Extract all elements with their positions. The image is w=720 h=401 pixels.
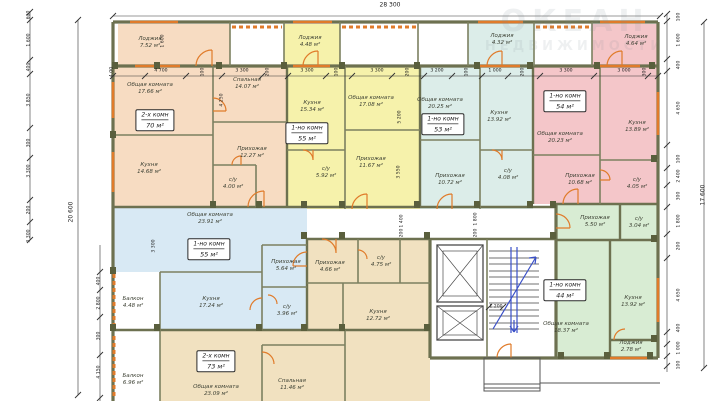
- dim-label: 5 200: [398, 110, 403, 123]
- dim-label: 1 800: [474, 212, 479, 225]
- room-label: Лоджия4.32 м²: [490, 33, 513, 47]
- dim-label: 3 300: [152, 239, 157, 252]
- room-label: Общая комната18.37 м²: [543, 321, 589, 335]
- floorplan-drawing: [0, 0, 720, 401]
- apartment-type-badge: 1-но комн53 м²: [421, 113, 464, 135]
- room-label: с/у3.04 м²: [629, 216, 649, 230]
- room-label: Кухня12.72 м²: [366, 309, 390, 323]
- dim-label: 2 400: [677, 169, 682, 182]
- dim-label: 3 300: [235, 69, 248, 74]
- dim-label: 3 300: [300, 69, 313, 74]
- room-label: с/у4.00 м²: [223, 177, 243, 191]
- dim-label: 300: [643, 68, 648, 77]
- room-label: Кухня14.68 м²: [137, 162, 161, 176]
- dim-label: 4 650: [677, 101, 682, 114]
- dim-label: 100: [335, 68, 340, 77]
- dim-label: 3 300: [370, 69, 383, 74]
- dim-label: 3 300: [27, 229, 32, 242]
- dim-label: 4 150: [97, 365, 102, 378]
- dim-label: 100: [201, 68, 206, 77]
- room-label: Кухня13.92 м²: [487, 110, 511, 124]
- dim-label: 300: [27, 139, 32, 148]
- room-label: Лоджия4.48 м²: [298, 35, 321, 49]
- dim-label: 3 000: [617, 69, 630, 74]
- dim-total-top: 28 300: [380, 2, 401, 9]
- floor-plan-canvas: ОКЕАН НЕДВИЖИМОСТИ 28 300 20 600 17 600 …: [0, 0, 720, 401]
- apartment-type-badge: 2-х комн70 м²: [135, 109, 174, 131]
- dim-label: 200: [27, 206, 32, 215]
- dim-label: 1 000: [677, 341, 682, 354]
- dim-label: 100: [677, 155, 682, 164]
- entrance-porch: [484, 358, 660, 391]
- room-label: Общая комната20.25 м²: [417, 97, 463, 111]
- dim-label: 1 400: [400, 214, 405, 227]
- dim-label: 100: [677, 361, 682, 370]
- dim-label: 1 800: [677, 214, 682, 227]
- dim-label: 3 200: [430, 69, 443, 74]
- dim-label: 4 650: [677, 288, 682, 301]
- dim-label: 200: [521, 68, 526, 77]
- room-label: Общая комната17.66 м²: [127, 82, 173, 96]
- dim-label: 600: [27, 11, 32, 20]
- dim-label: 1 600: [677, 33, 682, 46]
- staircase: [489, 247, 539, 333]
- room-label: Прихожая5.64 м²: [271, 259, 300, 273]
- dim-label: 400: [97, 277, 102, 286]
- dim-label: 3 300: [559, 69, 572, 74]
- room-label: Кухня15.34 м²: [300, 100, 324, 114]
- dim-label: 100: [677, 13, 682, 22]
- dim-label: 200: [677, 242, 682, 251]
- dim-label: 3 300: [27, 164, 32, 177]
- dim-total-left: 20 600: [68, 202, 75, 223]
- room-label: с/у4.75 м²: [371, 255, 391, 269]
- dim-label: 100: [465, 68, 470, 77]
- dim-label: 1 000: [488, 69, 501, 74]
- room-label: Лоджия7.52 м²: [138, 36, 161, 50]
- dim-label: 300: [97, 332, 102, 341]
- dim-label: 3 850: [27, 93, 32, 106]
- room-label: Лоджия4.64 м²: [624, 34, 647, 48]
- room-label: Прихожая11.67 м²: [356, 156, 385, 170]
- room-label: Балкон6.96 м²: [123, 373, 144, 387]
- room-label: Прихожая5.50 м²: [580, 215, 609, 229]
- room-label: Общая комната23.91 м²: [187, 212, 233, 226]
- room-label: с/у4.05 м²: [627, 177, 647, 191]
- apartment-type-badge: 1-но комн55 м²: [285, 122, 328, 144]
- room-label: Кухня17.24 м²: [199, 296, 223, 310]
- dim-label: 200: [406, 68, 411, 77]
- apartment-type-badge: 1-но комн55 м²: [187, 238, 230, 260]
- room-label: Лоджия2.78 м²: [619, 340, 642, 354]
- dim-label: 4 250: [220, 93, 225, 106]
- room-label: Кухня13.89 м²: [625, 120, 649, 134]
- room-label: с/у3.96 м²: [277, 304, 297, 318]
- room-label: Общая комната20.23 м²: [537, 131, 583, 145]
- dim-label: 200: [266, 68, 271, 77]
- dim-label: 400: [27, 63, 32, 72]
- elevator-shafts: [437, 245, 483, 340]
- dim-label: 400: [677, 324, 682, 333]
- dim-label: 300: [677, 192, 682, 201]
- room-label: Прихожая12.27 м²: [237, 146, 266, 160]
- dim-label: 400: [677, 61, 682, 70]
- room-label: Балкон4.48 м²: [123, 296, 144, 310]
- room-label: Кухня13.92 м²: [621, 295, 645, 309]
- room-label: Спальная14.07 м²: [233, 77, 261, 91]
- dim-label: 2 800: [97, 296, 102, 309]
- dim-label: 200: [400, 229, 405, 238]
- dim-label: 1 600: [27, 33, 32, 46]
- dim-stair: 1 200: [489, 305, 502, 310]
- dim-label: 4.00: [110, 67, 115, 77]
- room-label: Спальная11.46 м²: [278, 378, 306, 392]
- dim-total-right: 17 600: [700, 185, 707, 206]
- apartment-type-badge: 1-но комн44 м²: [543, 279, 586, 301]
- room-label: Общая комната17.08 м²: [348, 95, 394, 109]
- dim-label: 4 700: [154, 69, 167, 74]
- room-label: Прихожая10.72 м²: [435, 173, 464, 187]
- apartment-type-badge: 2-х комн73 м²: [196, 350, 235, 372]
- room-label: Общая комната23.09 м²: [193, 384, 239, 398]
- room-label: с/у4.08 м²: [498, 168, 518, 182]
- apartment-type-badge: 1-но комн54 м²: [543, 90, 586, 112]
- dim-label: 3 550: [397, 165, 402, 178]
- room-label: Прихожая10.68 м²: [565, 173, 594, 187]
- room-label: с/у5.92 м²: [316, 166, 336, 180]
- room-label: Прихожая4.66 м²: [315, 260, 344, 274]
- dim-label: 200: [474, 229, 479, 238]
